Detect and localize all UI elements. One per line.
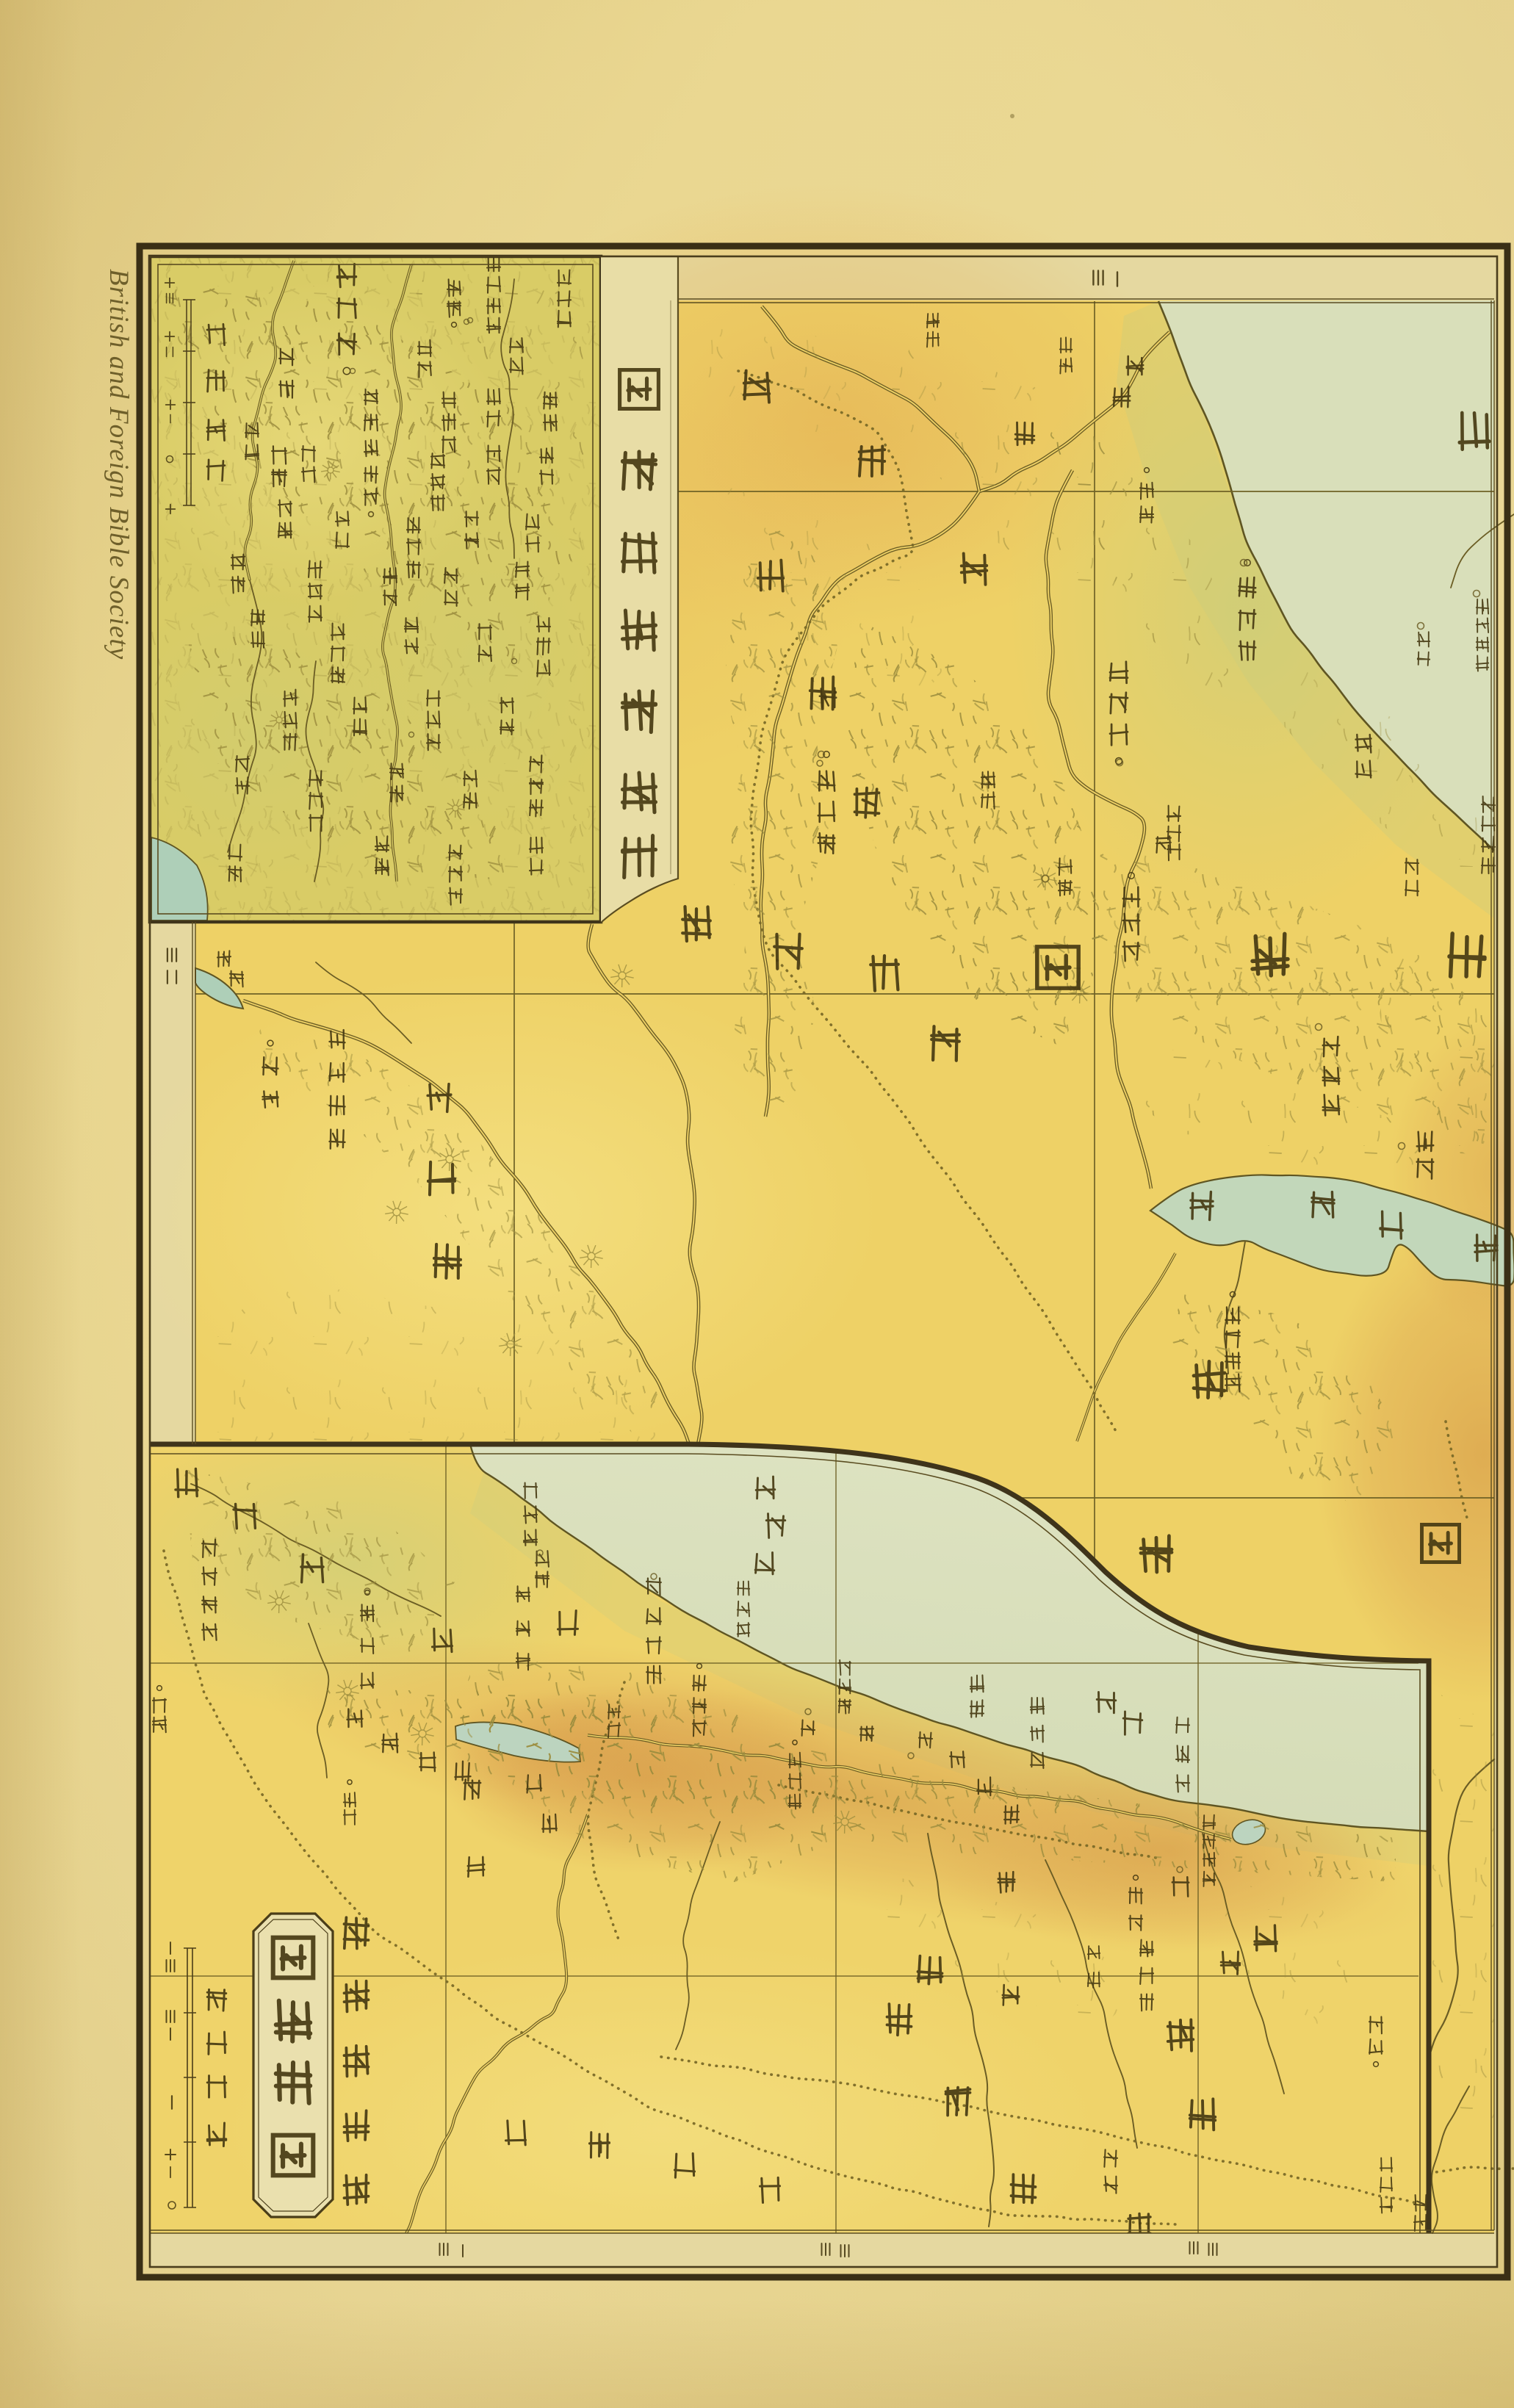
svg-text:British and Foreign Bible Soci: British and Foreign Bible Society [104, 269, 134, 660]
